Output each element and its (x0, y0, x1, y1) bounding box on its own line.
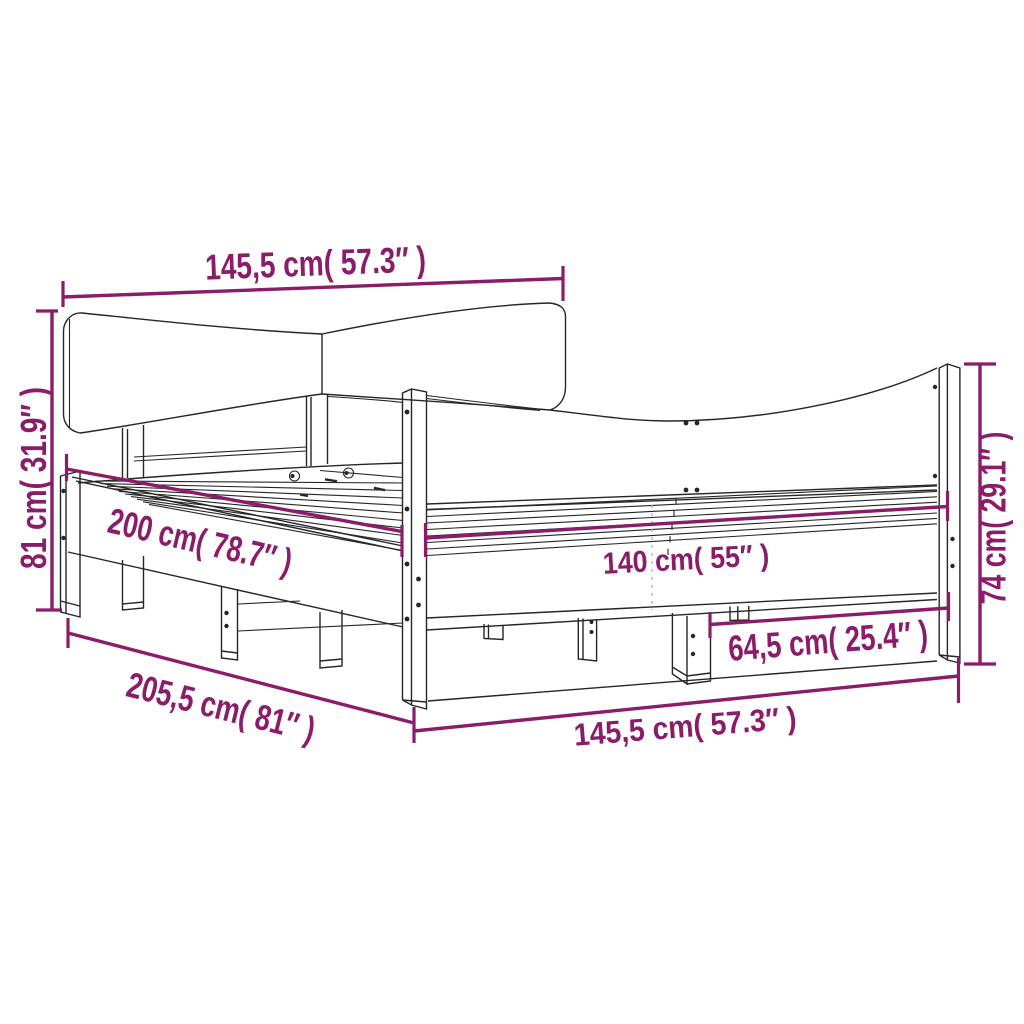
svg-text:74 cm( 29.1″ ): 74 cm( 29.1″ ) (973, 432, 1014, 605)
svg-text:81 cm( 31.9″ ): 81 cm( 31.9″ ) (14, 387, 54, 569)
svg-text:145,5 cm( 57.3″ ): 145,5 cm( 57.3″ ) (204, 239, 426, 288)
